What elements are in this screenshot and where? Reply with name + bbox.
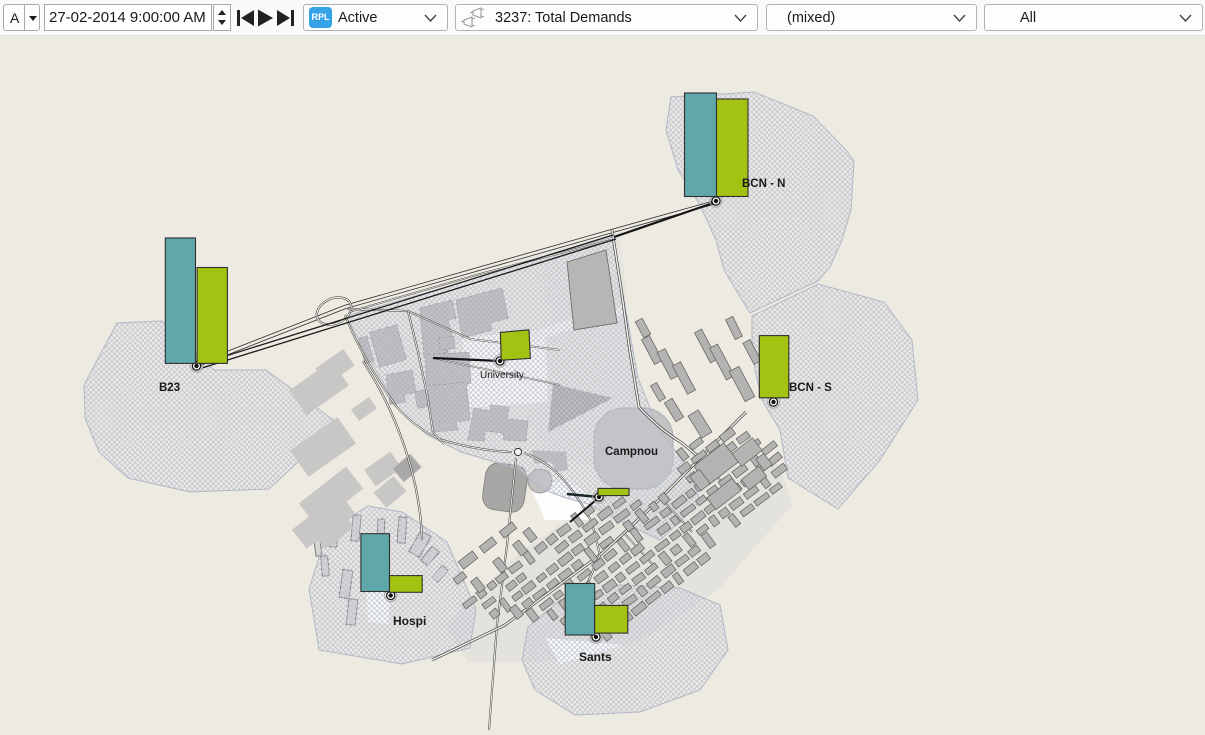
svg-text:BCN - S: BCN - S: [789, 382, 832, 394]
svg-text:Sants: Sants: [579, 650, 612, 664]
svg-text:Hospi: Hospi: [393, 614, 426, 628]
svg-text:University: University: [480, 370, 524, 381]
svg-text:BCN - N: BCN - N: [742, 178, 785, 190]
svg-text:B23: B23: [159, 382, 180, 394]
svg-text:Campnou: Campnou: [605, 446, 658, 458]
